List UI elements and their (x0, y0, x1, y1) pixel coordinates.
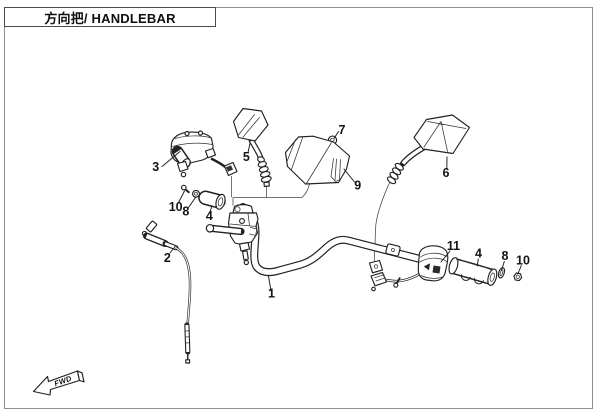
callout-8-right: 8 (502, 249, 509, 263)
callout-10-right: 10 (516, 254, 530, 268)
callout-1: 1 (268, 287, 275, 301)
fwd-arrow: FWD (34, 371, 85, 395)
callout-2: 2 (164, 251, 171, 265)
left-switch-drawing (171, 131, 237, 177)
throttle-cable-drawing (142, 221, 190, 363)
mirror-head-right (414, 115, 470, 154)
callout-6: 6 (443, 166, 450, 180)
cable-end-fitting (146, 221, 157, 233)
right-mirror-drawing (386, 115, 469, 185)
parts-diagram: FWD 3 5 7 9 6 10 8 4 (0, 0, 600, 418)
diagram-page: 方向把/ HANDLEBAR (0, 0, 600, 418)
left-grip-drawing (206, 193, 227, 210)
callout-8-left: 8 (182, 205, 189, 219)
mirror-head-left (234, 109, 269, 142)
switch-button (433, 266, 441, 274)
washer (497, 267, 505, 279)
right-switch-drawing (418, 246, 448, 281)
callout-11: 11 (447, 239, 460, 253)
nut (193, 190, 200, 197)
callout-5: 5 (243, 150, 250, 164)
left-mirror-drawing (234, 109, 272, 187)
callout-3: 3 (152, 160, 159, 174)
handlebar-tube-outline (243, 207, 420, 272)
right-bracket-drawing (370, 261, 419, 291)
lever-pivot-bolt (240, 219, 245, 224)
lever-ball-end (206, 225, 213, 232)
callout-10-left: 10 (169, 200, 183, 214)
handlebar-cover-drawing (286, 136, 350, 184)
master-cylinder-drawing (206, 205, 258, 265)
right-grip-drawing (447, 257, 498, 287)
handlebar-drawing (243, 207, 420, 272)
callout-4-left: 4 (206, 209, 213, 223)
callout-9: 9 (354, 179, 361, 193)
callout-7: 7 (339, 123, 346, 137)
page-title: 方向把/ HANDLEBAR (44, 8, 175, 27)
screw-shaft (185, 189, 189, 193)
screw-head (182, 185, 187, 190)
title-block: 方向把/ HANDLEBAR (4, 7, 216, 27)
cable-tip (186, 360, 190, 363)
callout-4-right: 4 (475, 247, 482, 261)
